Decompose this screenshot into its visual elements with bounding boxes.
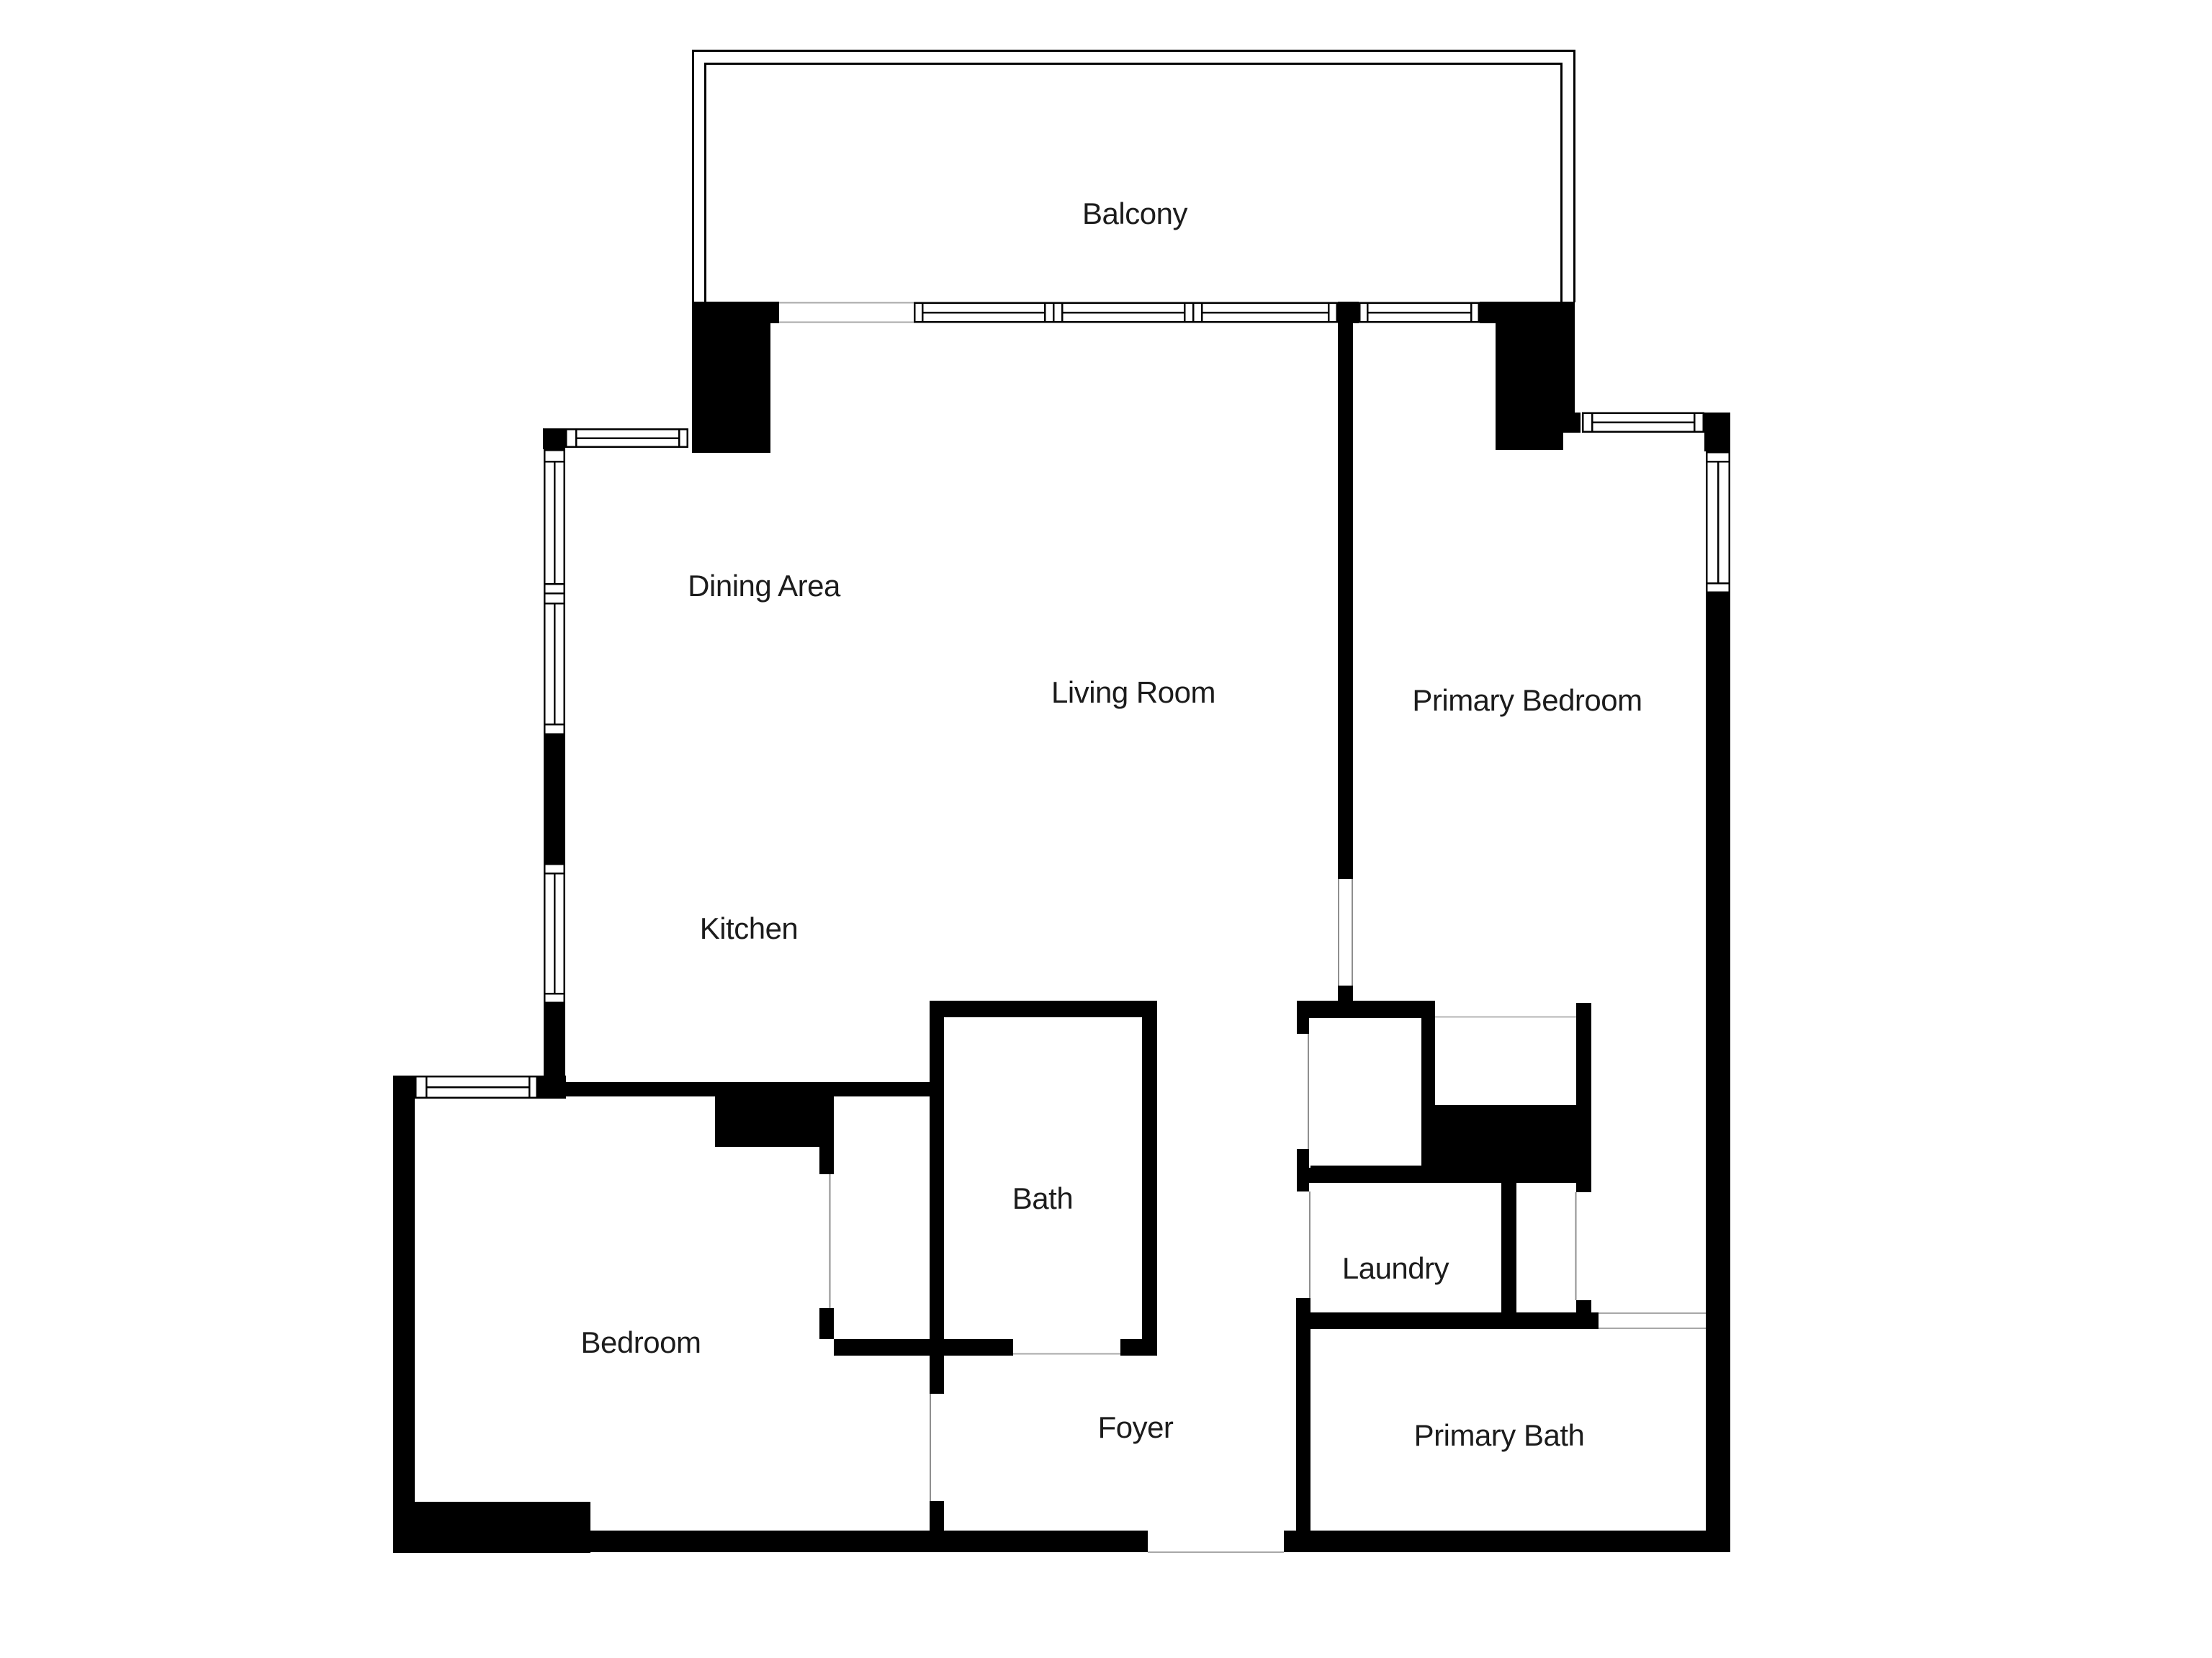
svg-text:Primary Bath: Primary Bath [1414,1418,1585,1452]
svg-text:Dining Area: Dining Area [688,569,841,603]
svg-text:Living Room: Living Room [1051,675,1215,709]
svg-text:Laundry: Laundry [1342,1251,1449,1285]
svg-text:Balcony: Balcony [1082,197,1187,230]
svg-text:Bedroom: Bedroom [581,1325,701,1359]
svg-text:Kitchen: Kitchen [700,911,799,945]
svg-text:Primary Bedroom: Primary Bedroom [1412,683,1642,717]
svg-text:Foyer: Foyer [1098,1410,1174,1444]
svg-text:Bath: Bath [1012,1181,1073,1215]
